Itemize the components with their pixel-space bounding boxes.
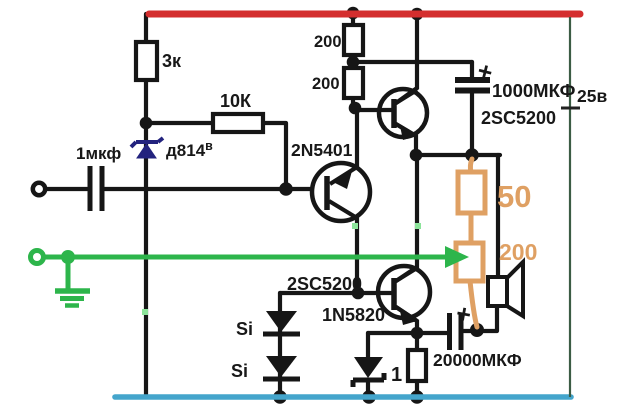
input-terminal <box>33 183 45 195</box>
label-cboot: 1000МКФ <box>492 80 576 101</box>
label-si2: Si <box>231 361 248 381</box>
label-zener-sup: в <box>205 139 213 153</box>
editing-artifact <box>142 309 148 315</box>
label-d-schottky: 1N5820 <box>322 305 385 325</box>
resistor-200-upper <box>344 25 363 55</box>
label-q3: 2SC5200 <box>287 274 362 294</box>
label-r200b: 200 <box>312 75 340 93</box>
transistor-q1-2n5401-body <box>312 163 370 221</box>
resistor-200-lower <box>344 68 363 98</box>
orange-resistor-50 <box>458 172 485 213</box>
label-si1: Si <box>236 319 253 339</box>
orange-resistor-200 <box>456 243 483 281</box>
signal-terminal <box>31 251 44 264</box>
label-q1: 2N5401 <box>291 140 353 160</box>
junction-dot <box>140 117 153 130</box>
editing-artifact <box>352 223 358 229</box>
resistor-1ohm <box>408 350 426 381</box>
label-r1ohm: 1 <box>391 364 402 386</box>
circuit-schematic: 3к 10К 1мкф д814в 2N5401 200 200 1000МКФ… <box>0 0 633 416</box>
label-zener-main: д814 <box>166 141 206 160</box>
label-r10k: 10К <box>220 91 252 111</box>
editing-artifact <box>415 223 421 229</box>
junction-dot <box>347 56 360 69</box>
label-cin: 1мкф <box>76 144 121 163</box>
junction-dot <box>411 327 424 340</box>
label-q2: 2SC5200 <box>481 108 556 128</box>
label-r200-orange: 200 <box>499 239 537 265</box>
label-r3k: 3к <box>162 51 182 71</box>
resistor-10k <box>213 114 263 132</box>
label-r50-orange: 50 <box>497 179 531 214</box>
junction-dot <box>279 182 293 196</box>
junction-dot <box>349 102 362 115</box>
junction-dot <box>410 149 423 162</box>
label-r200a: 200 <box>314 33 342 51</box>
speaker-magnet <box>488 277 507 306</box>
schematic-canvas: 3к 10К 1мкф д814в 2N5401 200 200 1000МКФ… <box>0 0 633 416</box>
label-cout: 20000МКФ <box>433 350 522 370</box>
resistor-3k <box>136 42 157 80</box>
label-battery-voltage: 25в <box>577 86 607 106</box>
